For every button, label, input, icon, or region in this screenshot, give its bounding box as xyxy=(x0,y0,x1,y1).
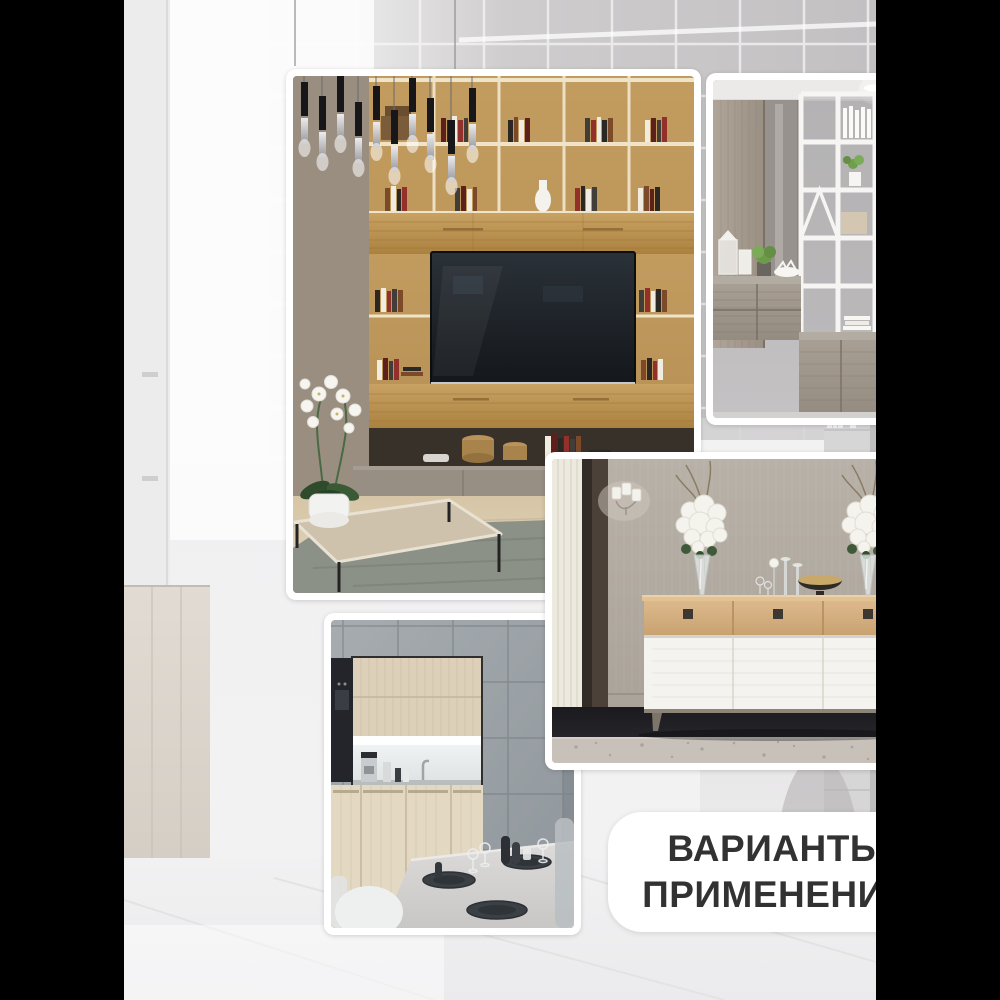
product-collage-image: ВАРИАНТЫ ПРИМЕНЕНИЯ xyxy=(0,0,1000,1000)
beige-wardrobe xyxy=(124,585,210,863)
under-cabinet-light xyxy=(353,736,481,745)
backdrop: ВАРИАНТЫ ПРИМЕНЕНИЯ xyxy=(124,0,876,1000)
badge-line1: ВАРИАНТЫ xyxy=(667,826,886,872)
tv-screen xyxy=(431,252,635,385)
kitchen-scene xyxy=(331,620,574,928)
white-doors xyxy=(644,635,912,709)
sideboard xyxy=(642,595,914,731)
pepper-grinder xyxy=(501,836,510,864)
photo-card-kitchen xyxy=(324,613,581,935)
drawer-handle xyxy=(683,609,693,619)
drawer-handle xyxy=(863,609,873,619)
drawer-handle xyxy=(773,609,783,619)
badge-line2: ПРИМЕНЕНИЯ xyxy=(642,872,912,918)
built-in-oven xyxy=(331,658,353,782)
letterbox-right xyxy=(876,0,1000,1000)
wood-plank-band-upper xyxy=(369,213,694,254)
letterbox-left xyxy=(0,0,124,1000)
salt-grinder xyxy=(512,842,520,864)
wood-plank-band-lower xyxy=(369,384,694,428)
